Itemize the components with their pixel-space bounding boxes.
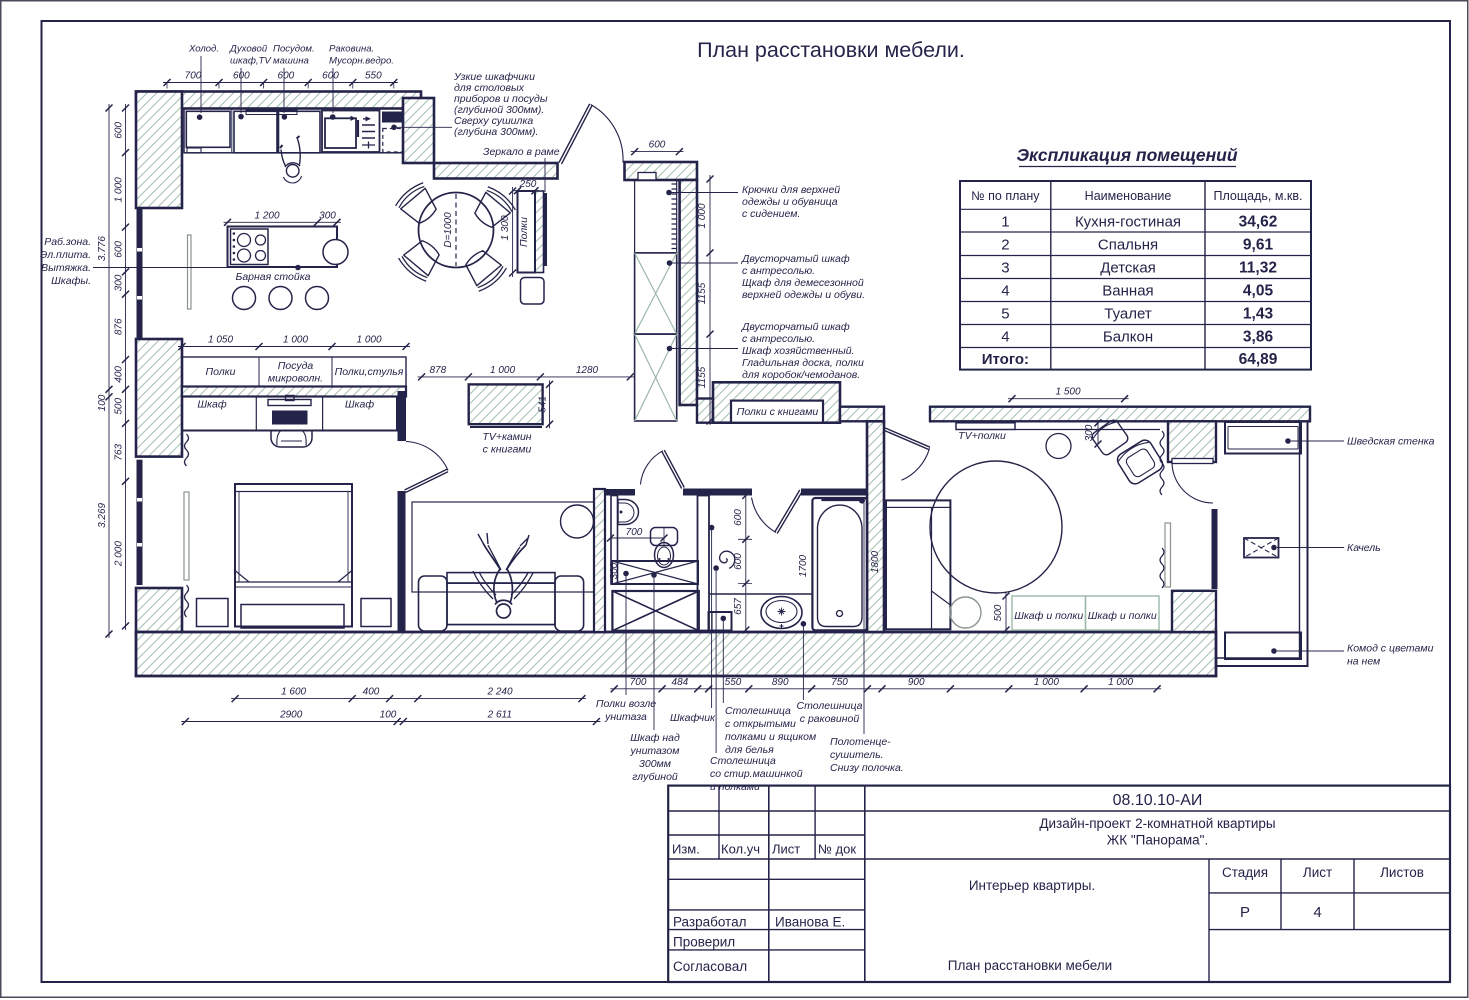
svg-text:1280: 1280 [576, 365, 599, 376]
svg-text:Мусорн.ведро.: Мусорн.ведро. [329, 56, 394, 67]
svg-text:Дизайн-проект 2-комнатной квар: Дизайн-проект 2-комнатной квартиры [1039, 816, 1275, 831]
svg-text:600: 600 [233, 71, 250, 82]
svg-text:с книгами: с книгами [483, 444, 532, 456]
svg-text:1 000: 1 000 [356, 335, 381, 346]
svg-text:со стир.машинкой: со стир.машинкой [710, 768, 803, 780]
svg-text:Интерьер квартиры.: Интерьер квартиры. [969, 878, 1095, 893]
svg-text:План расстановки мебели.: План расстановки мебели. [697, 38, 965, 62]
svg-text:машина: машина [273, 56, 309, 67]
svg-text:Итого:: Итого: [982, 351, 1029, 368]
svg-text:сушитель.: сушитель. [830, 749, 884, 761]
svg-text:500: 500 [993, 604, 1004, 621]
svg-text:Иванова Е.: Иванова Е. [775, 915, 845, 930]
svg-text:34,62: 34,62 [1239, 214, 1278, 231]
svg-text:1 600: 1 600 [281, 687, 306, 698]
svg-text:Крючки для верхней: Крючки для верхней [742, 184, 840, 196]
svg-text:3.269: 3.269 [97, 502, 108, 527]
svg-text:700: 700 [626, 527, 643, 538]
svg-text:3: 3 [1001, 260, 1009, 277]
svg-text:ЖК "Панорама".: ЖК "Панорама". [1107, 833, 1208, 848]
svg-text:4: 4 [1313, 904, 1321, 921]
svg-text:4,05: 4,05 [1243, 283, 1274, 300]
svg-text:Лист: Лист [1303, 865, 1332, 880]
svg-text:Посудом.: Посудом. [273, 44, 315, 55]
svg-text:250: 250 [519, 179, 537, 190]
svg-text:2 611: 2 611 [487, 710, 512, 721]
svg-text:Шкафчик: Шкафчик [670, 712, 716, 724]
svg-text:876: 876 [114, 318, 125, 335]
svg-text:с раковиной: с раковиной [800, 713, 860, 725]
svg-text:100: 100 [380, 710, 397, 721]
svg-text:Щкаф для демесезонной: Щкаф для демесезонной [742, 277, 864, 289]
svg-text:9,61: 9,61 [1243, 237, 1274, 254]
svg-text:D=1000: D=1000 [443, 212, 454, 248]
svg-text:541: 541 [538, 396, 549, 413]
svg-text:5: 5 [1001, 306, 1009, 323]
svg-text:3.776: 3.776 [97, 236, 108, 261]
svg-text:Туалет: Туалет [1104, 306, 1152, 323]
svg-text:глубиной: глубиной [632, 771, 678, 783]
svg-text:600: 600 [733, 553, 744, 570]
svg-text:300мм: 300мм [639, 758, 671, 770]
svg-text:1 000: 1 000 [114, 177, 125, 202]
svg-text:Столешница: Столешница [710, 755, 776, 767]
svg-text:484: 484 [672, 677, 689, 688]
svg-text:Эл.плита.: Эл.плита. [40, 249, 91, 261]
svg-text:Раб.зона.: Раб.зона. [44, 236, 91, 248]
svg-text:1155: 1155 [697, 366, 708, 388]
svg-text:Шкаф хозяйственный.: Шкаф хозяйственный. [742, 345, 854, 357]
svg-text:700: 700 [630, 677, 647, 688]
svg-text:400: 400 [363, 687, 380, 698]
svg-text:№ док: № док [818, 842, 856, 857]
svg-text:2 240: 2 240 [486, 687, 512, 698]
svg-text:Полки возле: Полки возле [596, 698, 656, 710]
svg-text:Шкафы.: Шкафы. [51, 275, 91, 287]
svg-text:TV+полки: TV+полки [958, 430, 1006, 442]
svg-text:на нем: на нем [1347, 656, 1380, 668]
svg-text:с антресолью.: с антресолью. [742, 265, 815, 277]
svg-text:одежды и обувница: одежды и обувница [742, 196, 838, 208]
svg-text:Лист: Лист [772, 842, 800, 857]
svg-text:Шкаф и полки: Шкаф и полки [1088, 610, 1157, 622]
svg-text:Шкаф: Шкаф [197, 399, 226, 411]
svg-text:2 000: 2 000 [114, 541, 125, 567]
svg-text:Раковина.: Раковина. [329, 44, 374, 55]
svg-text:для коробок/чемоданов.: для коробок/чемоданов. [742, 369, 860, 381]
svg-text:Холод.: Холод. [188, 44, 219, 55]
svg-text:Р: Р [1240, 904, 1250, 921]
svg-text:750: 750 [831, 677, 848, 688]
svg-text:700: 700 [185, 71, 202, 82]
svg-text:(глубина 300мм).: (глубина 300мм). [454, 126, 538, 138]
svg-text:шкаф,TV: шкаф,TV [230, 56, 272, 67]
svg-text:1800: 1800 [870, 550, 881, 573]
svg-text:500: 500 [114, 398, 125, 415]
svg-text:План расстановки мебели: План расстановки мебели [948, 958, 1112, 973]
svg-text:1 050: 1 050 [208, 335, 233, 346]
svg-text:1 200: 1 200 [254, 210, 279, 221]
svg-text:600: 600 [278, 71, 295, 82]
svg-text:1: 1 [1001, 214, 1009, 231]
svg-text:1 000: 1 000 [283, 335, 308, 346]
svg-text:300: 300 [319, 210, 336, 221]
svg-text:763: 763 [114, 444, 125, 461]
svg-text:1 000: 1 000 [697, 203, 708, 228]
svg-text:унитаза: унитаза [604, 711, 647, 723]
svg-text:878: 878 [429, 365, 446, 376]
svg-text:верхней одежды и обуви.: верхней одежды и обуви. [742, 289, 865, 301]
svg-text:Зеркало в раме: Зеркало в раме [483, 146, 560, 158]
svg-text:Полки: Полки [206, 366, 236, 378]
svg-text:1155: 1155 [697, 282, 708, 304]
svg-text:TV+камин: TV+камин [482, 431, 531, 443]
svg-text:300: 300 [609, 562, 620, 579]
svg-text:400: 400 [114, 366, 125, 383]
svg-text:Полки с книгами: Полки с книгами [737, 406, 819, 418]
svg-text:Разработал: Разработал [673, 915, 746, 930]
svg-text:Согласовал: Согласовал [673, 959, 747, 974]
svg-text:550: 550 [725, 677, 742, 688]
svg-text:08.10.10-АИ: 08.10.10-АИ [1113, 792, 1203, 809]
svg-text:300: 300 [114, 274, 125, 291]
svg-text:Комод с цветами: Комод с цветами [1347, 643, 1434, 655]
svg-text:Вытяжка.: Вытяжка. [41, 262, 91, 274]
svg-text:микроволн.: микроволн. [268, 373, 323, 385]
svg-text:Шкаф и полки: Шкаф и полки [1014, 610, 1083, 622]
svg-text:с открытыми: с открытыми [725, 718, 796, 730]
svg-text:600: 600 [649, 140, 666, 151]
svg-text:унитазом: унитазом [630, 745, 680, 757]
svg-text:Изм.: Изм. [672, 842, 700, 857]
svg-text:Шведская стенка: Шведская стенка [1347, 436, 1435, 448]
svg-text:Посуда: Посуда [278, 360, 314, 372]
svg-text:с антресолью.: с антресолью. [742, 333, 815, 345]
svg-text:Площадь, м.кв.: Площадь, м.кв. [1213, 189, 1302, 203]
svg-text:Балкон: Балкон [1103, 329, 1153, 346]
svg-text:Стадия: Стадия [1222, 865, 1268, 880]
svg-text:Гладильная доска, полки: Гладильная доска, полки [742, 357, 864, 369]
svg-text:Кол.уч: Кол.уч [721, 842, 760, 857]
svg-text:Полотенце-: Полотенце- [830, 736, 891, 748]
svg-text:4: 4 [1001, 329, 1009, 346]
svg-text:Проверил: Проверил [673, 935, 735, 950]
svg-text:Столешница: Столешница [797, 700, 863, 712]
svg-text:600: 600 [114, 241, 125, 258]
svg-text:Двусторчатый шкаф: Двусторчатый шкаф [741, 253, 850, 265]
svg-text:1 000: 1 000 [1108, 677, 1133, 688]
svg-text:3,86: 3,86 [1243, 329, 1274, 346]
svg-text:Полки,стулья: Полки,стулья [335, 366, 404, 378]
svg-text:Столешница: Столешница [725, 705, 791, 717]
svg-text:Детская: Детская [1100, 260, 1156, 277]
svg-text:900: 900 [908, 677, 925, 688]
svg-text:Шкаф над: Шкаф над [630, 732, 680, 744]
svg-text:Наименование: Наименование [1085, 189, 1172, 203]
svg-text:100: 100 [97, 394, 108, 411]
svg-text:Барная стойка: Барная стойка [235, 271, 310, 283]
svg-text:Двусторчатый шкаф: Двусторчатый шкаф [741, 321, 850, 333]
svg-text:Шкаф: Шкаф [345, 399, 374, 411]
svg-text:1 500: 1 500 [1055, 387, 1080, 398]
svg-text:2900: 2900 [279, 710, 303, 721]
svg-text:600: 600 [114, 122, 125, 139]
svg-text:657: 657 [733, 598, 744, 615]
svg-text:1 000: 1 000 [1034, 677, 1059, 688]
svg-text:2: 2 [1001, 237, 1009, 254]
svg-text:1 000: 1 000 [490, 365, 515, 376]
svg-text:Снизу полочка.: Снизу полочка. [830, 762, 904, 774]
svg-text:600: 600 [322, 71, 339, 82]
svg-text:полками и ящиком: полками и ящиком [725, 731, 816, 743]
svg-text:Экспликация помещений: Экспликация помещений [1016, 145, 1237, 165]
svg-text:890: 890 [772, 677, 789, 688]
svg-text:и полками: и полками [710, 781, 760, 793]
svg-text:600: 600 [733, 509, 744, 526]
svg-text:1700: 1700 [798, 554, 809, 577]
svg-text:Качель: Качель [1347, 542, 1381, 554]
svg-text:с сидением.: с сидением. [742, 208, 800, 220]
svg-text:550: 550 [365, 71, 382, 82]
svg-text:Листов: Листов [1380, 865, 1424, 880]
svg-text:Кухня-гостиная: Кухня-гостиная [1075, 214, 1181, 231]
svg-text:11,32: 11,32 [1239, 260, 1277, 277]
svg-text:Спальня: Спальня [1098, 237, 1158, 254]
svg-text:1 300: 1 300 [500, 215, 511, 240]
svg-text:Духовой: Духовой [229, 44, 268, 55]
svg-text:1,43: 1,43 [1243, 306, 1274, 323]
svg-text:300: 300 [1084, 424, 1095, 441]
svg-text:Ванная: Ванная [1102, 283, 1153, 300]
svg-text:64,89: 64,89 [1239, 351, 1278, 368]
svg-text:№ по плану: № по плану [971, 189, 1040, 203]
svg-text:Полки: Полки [518, 217, 530, 247]
svg-text:4: 4 [1001, 283, 1009, 300]
